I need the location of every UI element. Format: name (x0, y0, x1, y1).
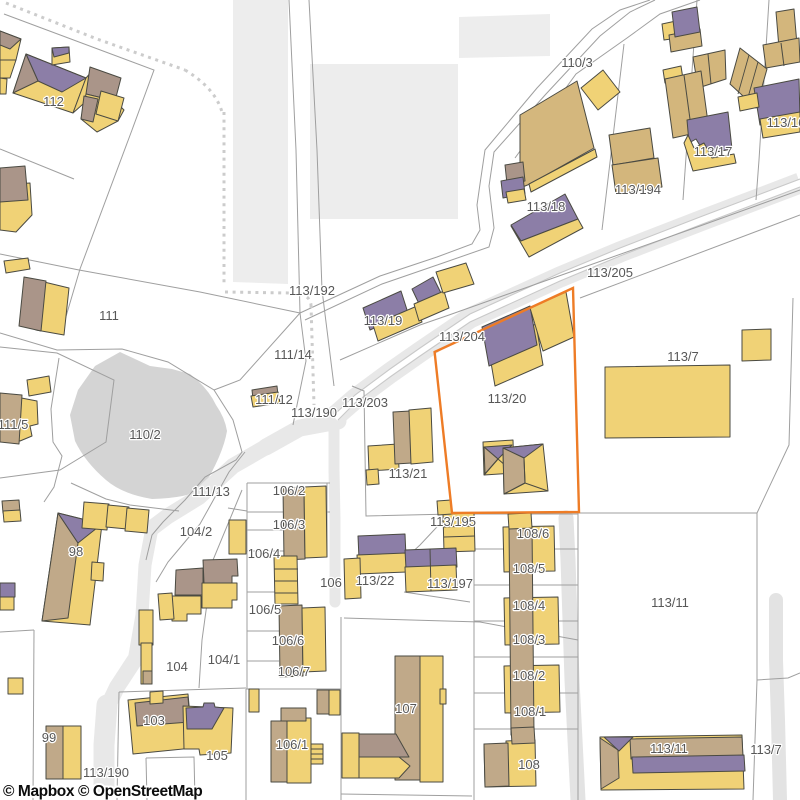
svg-text:© Mapbox © OpenStreetMap: © Mapbox © OpenStreetMap (3, 783, 202, 800)
svg-text:108: 108 (518, 757, 540, 772)
svg-text:113/17: 113/17 (694, 144, 733, 159)
svg-text:108/3: 108/3 (513, 632, 546, 647)
svg-text:113/195: 113/195 (430, 514, 476, 529)
svg-text:108/4: 108/4 (513, 598, 546, 613)
svg-text:113/20: 113/20 (488, 391, 527, 406)
svg-text:111/5: 111/5 (0, 417, 28, 432)
svg-text:99: 99 (42, 730, 56, 745)
svg-text:106/4: 106/4 (248, 546, 281, 561)
svg-text:111/14: 111/14 (274, 347, 312, 362)
svg-text:104: 104 (166, 659, 188, 674)
svg-text:106/6: 106/6 (272, 633, 305, 648)
svg-text:106: 106 (320, 575, 342, 590)
svg-text:113/190: 113/190 (83, 765, 129, 780)
svg-text:98: 98 (69, 544, 83, 559)
svg-text:113/22: 113/22 (356, 573, 395, 588)
svg-text:106/7: 106/7 (278, 664, 311, 679)
svg-text:107: 107 (395, 701, 417, 716)
svg-text:113/7: 113/7 (750, 742, 782, 757)
svg-text:113/190: 113/190 (291, 405, 337, 420)
svg-text:108/1: 108/1 (514, 704, 547, 719)
svg-text:113/21: 113/21 (389, 466, 428, 481)
svg-text:110/2: 110/2 (129, 427, 161, 442)
svg-text:106/5: 106/5 (249, 602, 282, 617)
svg-text:113/197: 113/197 (427, 576, 473, 591)
svg-text:108/6: 108/6 (517, 526, 550, 541)
svg-text:106/3: 106/3 (273, 517, 306, 532)
svg-text:113/11: 113/11 (650, 741, 688, 756)
svg-text:113/18: 113/18 (527, 199, 566, 214)
svg-text:108/5: 108/5 (513, 561, 546, 576)
svg-text:112: 112 (43, 94, 64, 109)
svg-text:108/2: 108/2 (513, 668, 546, 683)
svg-text:111: 111 (99, 308, 119, 323)
svg-text:110/3: 110/3 (561, 55, 593, 70)
svg-text:113/203: 113/203 (342, 395, 388, 410)
svg-text:111/13: 111/13 (192, 484, 230, 499)
svg-text:105: 105 (206, 748, 228, 763)
svg-text:103: 103 (143, 713, 165, 728)
svg-text:111/12: 111/12 (255, 392, 293, 407)
svg-text:104/2: 104/2 (180, 524, 213, 539)
svg-text:113/16: 113/16 (767, 115, 800, 130)
svg-text:113/205: 113/205 (587, 265, 633, 280)
svg-text:113/204: 113/204 (439, 329, 485, 344)
svg-text:113/194: 113/194 (615, 182, 661, 197)
svg-text:113/192: 113/192 (289, 283, 335, 298)
svg-text:106/2: 106/2 (273, 483, 306, 498)
svg-text:104/1: 104/1 (208, 652, 241, 667)
svg-text:106/1: 106/1 (276, 737, 309, 752)
svg-text:113/19: 113/19 (364, 313, 403, 328)
svg-text:113/7: 113/7 (667, 349, 699, 364)
svg-text:113/11: 113/11 (651, 595, 689, 610)
